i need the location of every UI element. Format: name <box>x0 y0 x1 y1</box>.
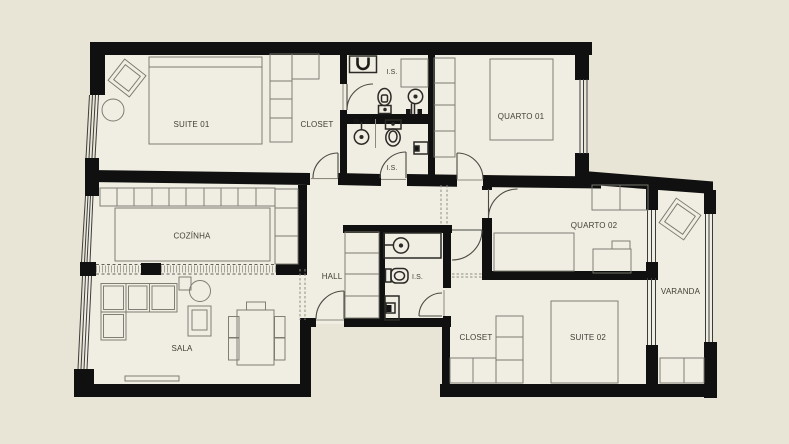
svg-text:I.S.: I.S. <box>387 69 398 76</box>
svg-text:VARANDA: VARANDA <box>661 287 701 296</box>
svg-text:HALL: HALL <box>322 272 343 281</box>
svg-text:I.S.: I.S. <box>412 274 423 281</box>
svg-text:SUITE 02: SUITE 02 <box>570 333 606 342</box>
svg-text:QUARTO 01: QUARTO 01 <box>498 112 545 121</box>
svg-text:I.S.: I.S. <box>387 165 398 172</box>
svg-text:COZÍNHA: COZÍNHA <box>173 232 211 241</box>
svg-text:CLOSET: CLOSET <box>460 333 493 342</box>
svg-text:CLOSET: CLOSET <box>301 120 334 129</box>
svg-text:SUITE 01: SUITE 01 <box>174 120 210 129</box>
svg-text:SALA: SALA <box>171 344 193 353</box>
svg-text:QUARTO 02: QUARTO 02 <box>571 221 618 230</box>
